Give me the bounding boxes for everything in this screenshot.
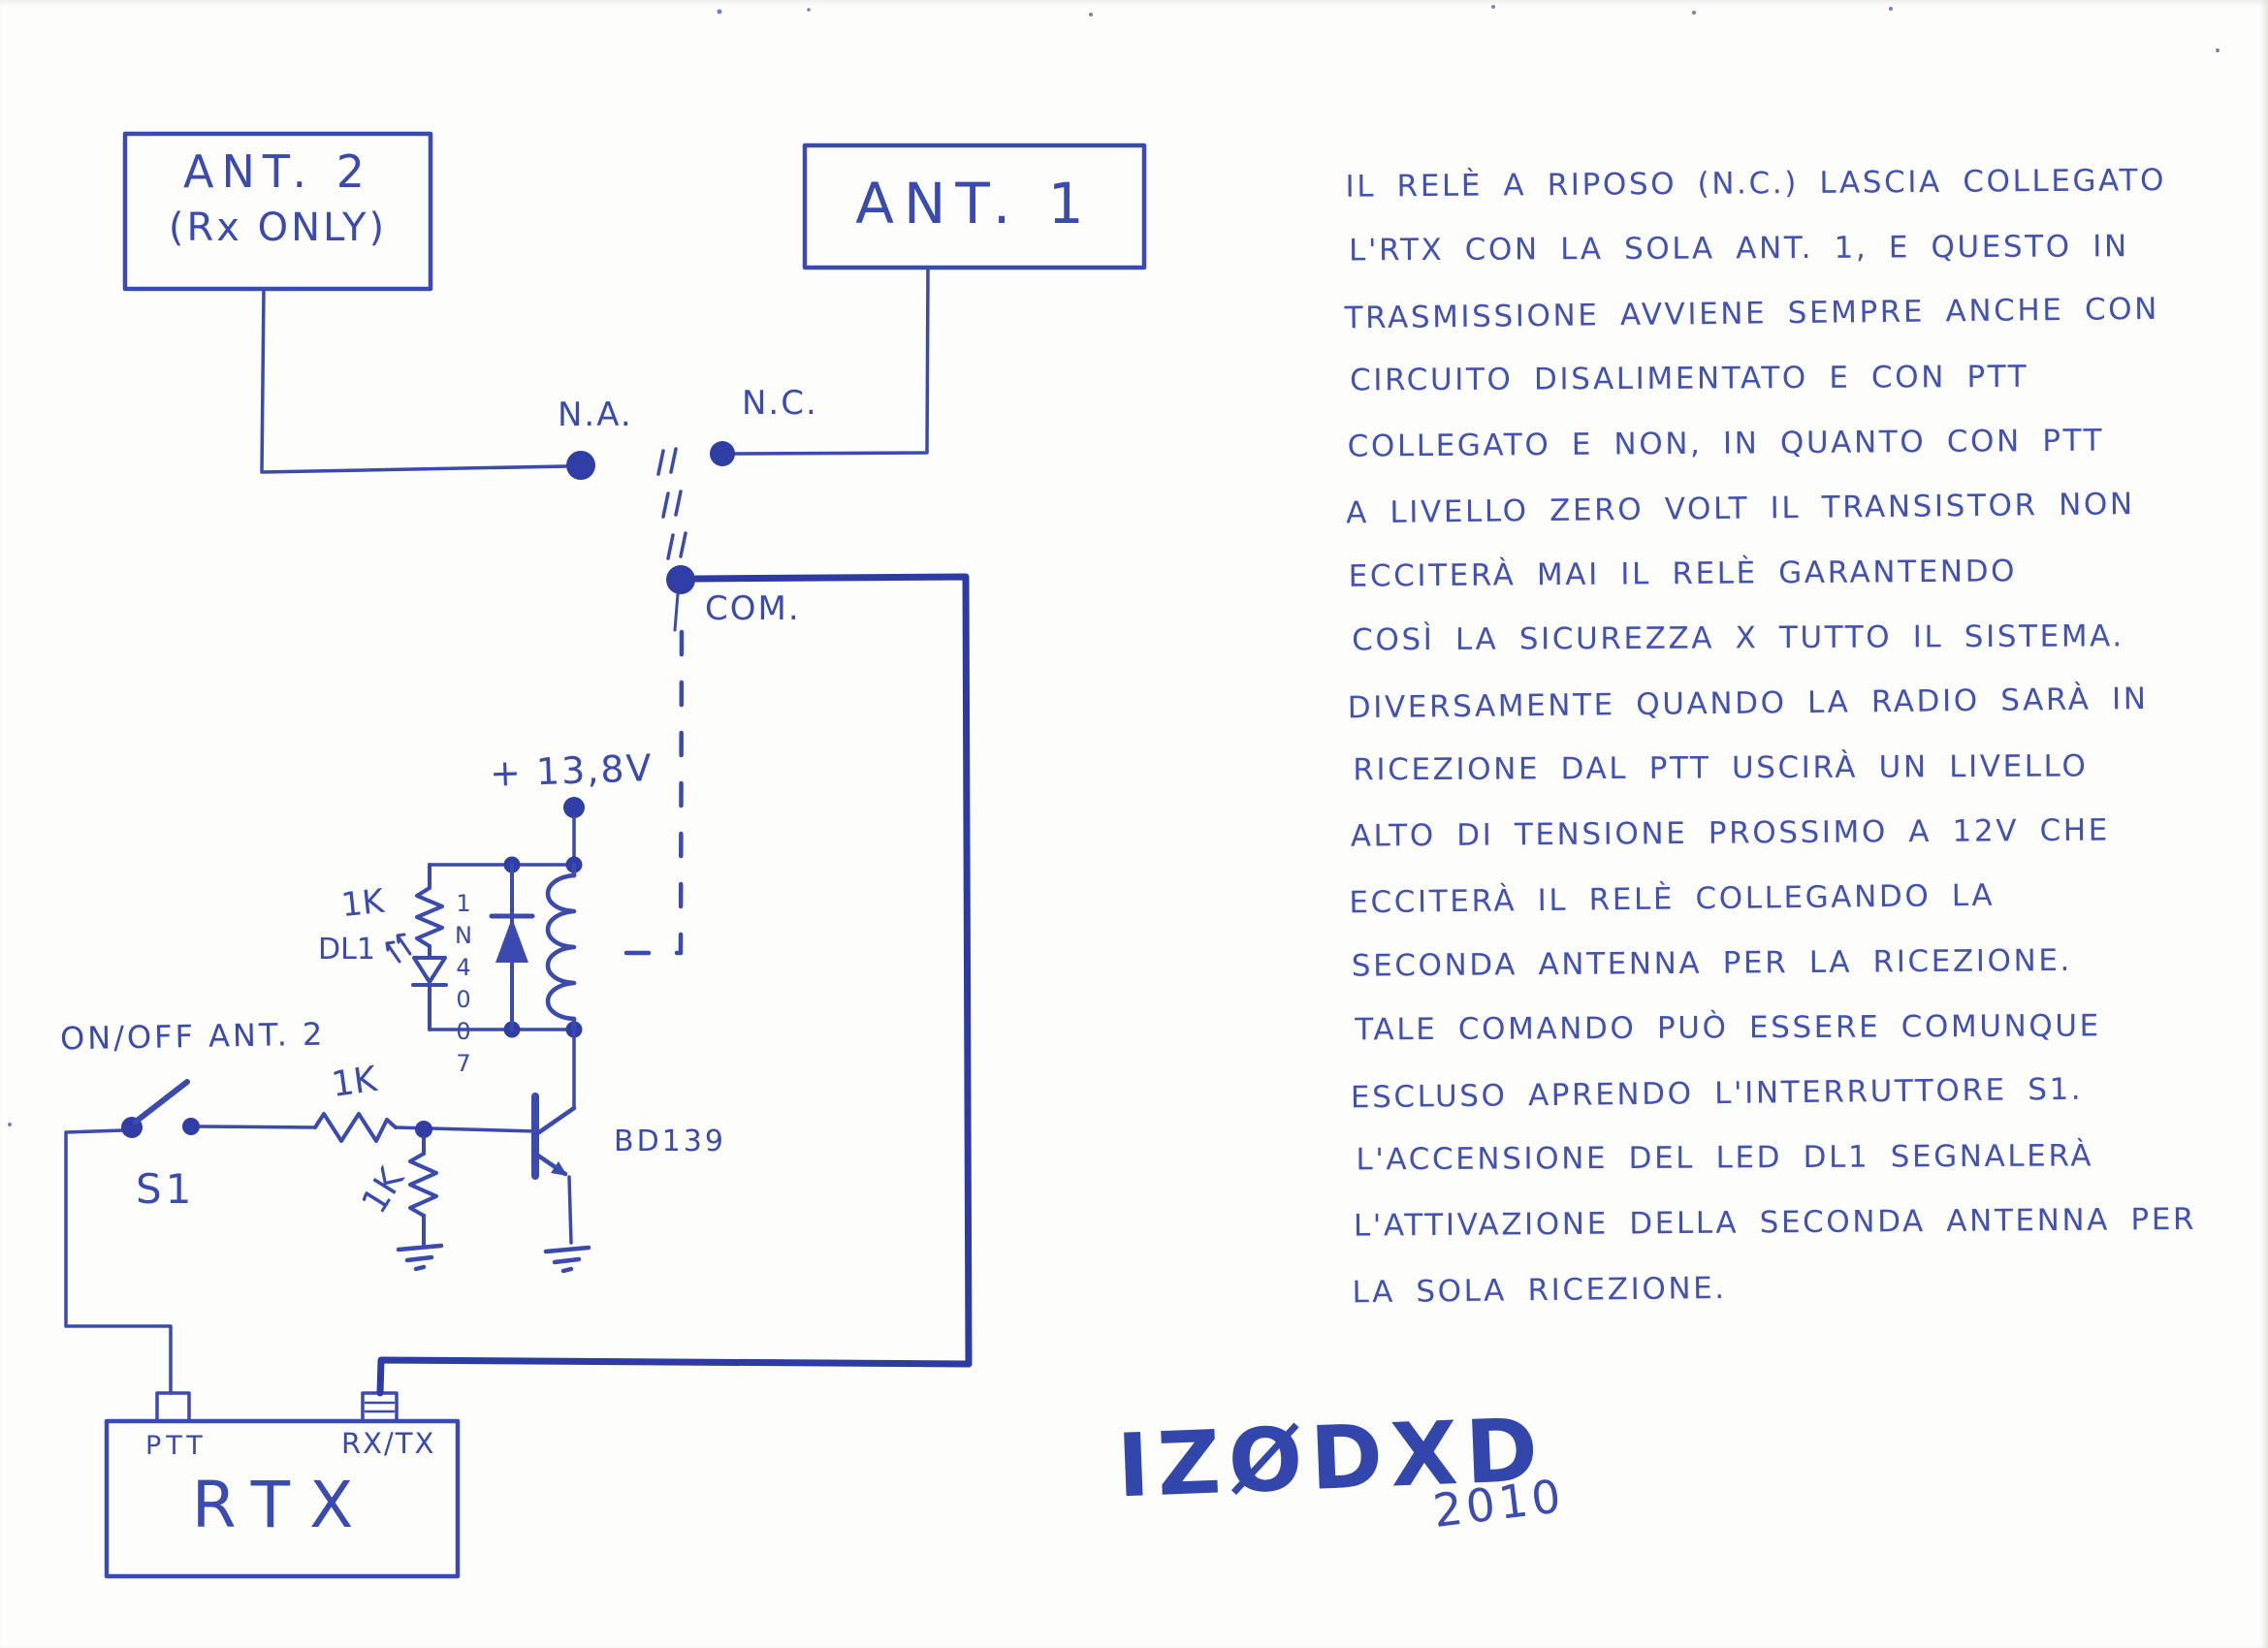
ptt-label: PTT: [145, 1431, 208, 1461]
note-line: IL RELÈ A RIPOSO (N.C.) LASCIA COLLEGATO: [1345, 147, 2256, 219]
note-line: ALTO DI TENSIONE PROSSIMO A 12V CHE: [1351, 797, 2262, 869]
wire-nc-to-ant1: [735, 268, 928, 454]
na-label: N.A.: [558, 396, 633, 434]
switch-s1-label: S1: [136, 1165, 195, 1213]
note-line: CIRCUITO DISALIMENTATO E CON PTT: [1350, 344, 2261, 414]
base-resistor: [315, 1114, 396, 1141]
rxtx-connector: [363, 1393, 397, 1421]
base-resistor-label: 1K: [329, 1060, 379, 1105]
ground-symbol-base: [399, 1246, 441, 1269]
pulldown-resistor: [410, 1138, 436, 1245]
handwritten-notes: IL RELÈ A RIPOSO (N.C.) LASCIA COLLEGATO…: [1345, 147, 2265, 1323]
na-contact-dot: [566, 451, 595, 480]
note-line: TALE COMANDO PUÒ ESSERE COMUNQUE: [1355, 994, 2266, 1063]
nc-contact-dot: [710, 441, 735, 466]
led-resistor: [417, 865, 442, 946]
note-line: RICEZIONE DAL PTT USCIRÀ UN LIVELLO: [1353, 734, 2264, 804]
note-line: A LIVELLO ZERO VOLT IL TRANSISTOR NON: [1346, 471, 2258, 547]
note-line: L'RTX CON LA SOLA ANT. 1, E QUESTO IN: [1349, 214, 2260, 284]
note-line: COSÌ LA SICUREZZA X TUTTO IL SISTEMA.: [1352, 604, 2263, 674]
ground-symbol-emitter: [546, 1248, 589, 1271]
note-line: ESCLUSO APRENDO L'INTERRUTTORE S1.: [1351, 1056, 2263, 1131]
note-line: TRASMISSIONE AVVIENE SEMPRE ANCHE CON: [1344, 276, 2256, 352]
switch-title-label: ON/OFF ANT. 2: [60, 1016, 326, 1058]
note-line: SECONDA ANTENNA PER LA RICEZIONE.: [1352, 927, 2263, 998]
led-resistor-label: 1K: [339, 882, 386, 925]
led-arrows: [387, 935, 410, 962]
note-line: LA SOLA RICEZIONE.: [1352, 1251, 2264, 1326]
rtx-label: RTX: [107, 1468, 458, 1542]
transistor-bd139-label: BD139: [614, 1125, 726, 1158]
ptt-connector: [157, 1393, 189, 1421]
transistor-bd139: [535, 1096, 574, 1243]
note-line: COLLEGATO E NON, IN QUANTO CON PTT: [1347, 407, 2258, 479]
nc-label: N.C.: [742, 384, 818, 423]
note-line: ECCITERÀ IL RELÈ COLLEGANDO LA: [1349, 861, 2261, 936]
led-dl1-label: DL1: [318, 933, 375, 967]
ant2-label-line2: (Rx ONLY): [125, 206, 431, 250]
flyback-diode-1n4007: [492, 865, 532, 1030]
relay-coil-block: [387, 797, 585, 1038]
relay-mechanical-link: [602, 632, 682, 953]
led-dl1: [387, 935, 446, 1030]
base-node-dot: [415, 1121, 432, 1138]
wire-ant2-to-na: [262, 289, 565, 472]
scanned-schematic-page: ANT. 2 (Rx ONLY) ANT. 1 N.A. N.C. COM. +…: [0, 0, 2268, 1648]
rxtx-label: RX/TX: [341, 1427, 435, 1460]
ant2-label-line1: ANT. 2: [125, 145, 431, 198]
note-line: L'ATTIVAZIONE DELLA SECONDA ANTENNA PER: [1354, 1187, 2265, 1258]
switch-s1: [121, 1082, 200, 1138]
note-line: DIVERSAMENTE QUANDO LA RADIO SARÀ IN: [1347, 666, 2259, 742]
com-contact-dot: [666, 565, 695, 594]
flyback-diode-label: 1N4007: [452, 890, 475, 1082]
com-label: COM.: [705, 589, 801, 628]
armature-ticks: [658, 449, 686, 558]
note-line: ECCITERÀ MAI IL RELÈ GARANTENDO: [1348, 537, 2259, 609]
relay-coil: [548, 865, 574, 1030]
supply-voltage-label: + 13,8V: [489, 746, 654, 795]
note-line: L'ACCENSIONE DEL LED DL1 SEGNALERÀ: [1356, 1124, 2267, 1193]
ant1-label: ANT. 1: [805, 171, 1144, 237]
